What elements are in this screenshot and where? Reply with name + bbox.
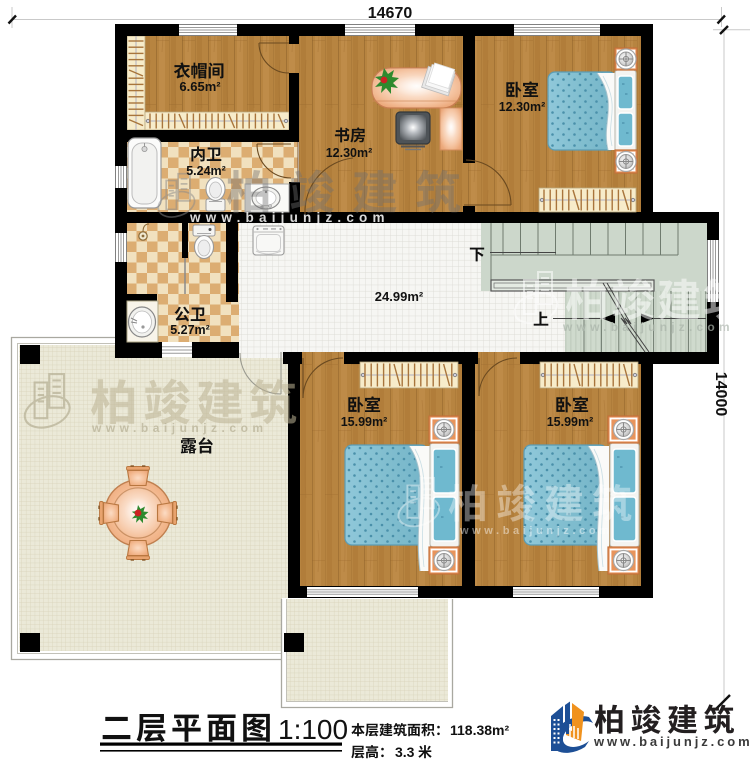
svg-text:5.27m²: 5.27m²: [170, 323, 210, 337]
svg-text:14000: 14000: [712, 372, 729, 417]
svg-text:3.3: 3.3: [395, 744, 415, 760]
svg-text:14670: 14670: [368, 5, 413, 22]
svg-text:1:100: 1:100: [278, 714, 348, 745]
svg-text:5.24m²: 5.24m²: [186, 164, 226, 178]
svg-text:15.99m²: 15.99m²: [547, 415, 594, 429]
svg-text:12.30m²: 12.30m²: [499, 100, 546, 114]
svg-text:118.38m²: 118.38m²: [450, 722, 509, 738]
svg-text:www.baijunjz.com: www.baijunjz.com: [562, 320, 734, 334]
svg-text:www.baijunjz.com: www.baijunjz.com: [91, 421, 268, 435]
svg-text:www.baijunjz.com: www.baijunjz.com: [189, 210, 390, 225]
svg-text:www.baijunjz.com: www.baijunjz.com: [459, 525, 613, 537]
svg-text:www.baijunjz.com: www.baijunjz.com: [593, 734, 750, 749]
svg-text:6.65m²: 6.65m²: [179, 79, 221, 94]
svg-text:24.99m²: 24.99m²: [375, 289, 424, 304]
svg-text:12.30m²: 12.30m²: [326, 146, 373, 160]
svg-text:15.99m²: 15.99m²: [341, 415, 388, 429]
